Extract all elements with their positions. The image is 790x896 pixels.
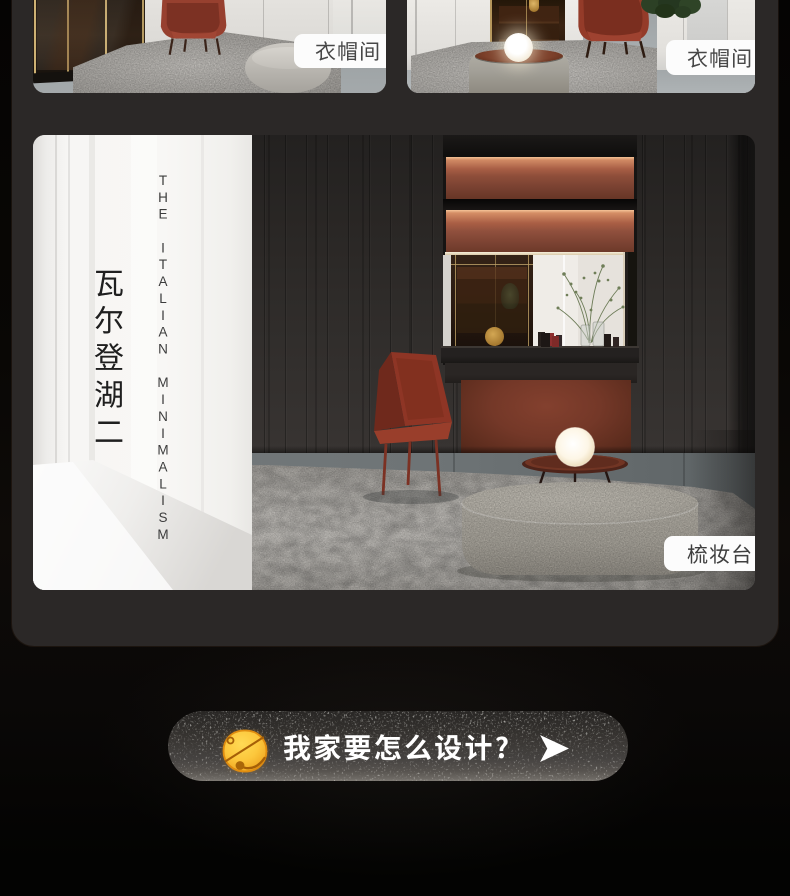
svg-text:T: T: [159, 173, 167, 188]
svg-text:I: I: [161, 392, 165, 407]
svg-text:T: T: [159, 257, 167, 272]
svg-text:N: N: [158, 342, 168, 357]
svg-text:L: L: [159, 476, 167, 491]
svg-text:E: E: [158, 207, 167, 222]
svg-text:I: I: [161, 493, 165, 508]
svg-text:A: A: [158, 274, 167, 289]
svg-text:A: A: [158, 325, 167, 340]
svg-text:I: I: [161, 240, 165, 255]
svg-text:L: L: [159, 291, 167, 306]
svg-text:S: S: [158, 510, 167, 525]
svg-text:M: M: [157, 527, 168, 542]
svg-text:N: N: [158, 409, 168, 424]
svg-text:H: H: [158, 190, 168, 205]
svg-text:M: M: [157, 443, 168, 458]
svg-text:A: A: [158, 460, 167, 475]
svg-text:I: I: [161, 308, 165, 323]
svg-text:M: M: [157, 375, 168, 390]
svg-text:I: I: [161, 426, 165, 441]
